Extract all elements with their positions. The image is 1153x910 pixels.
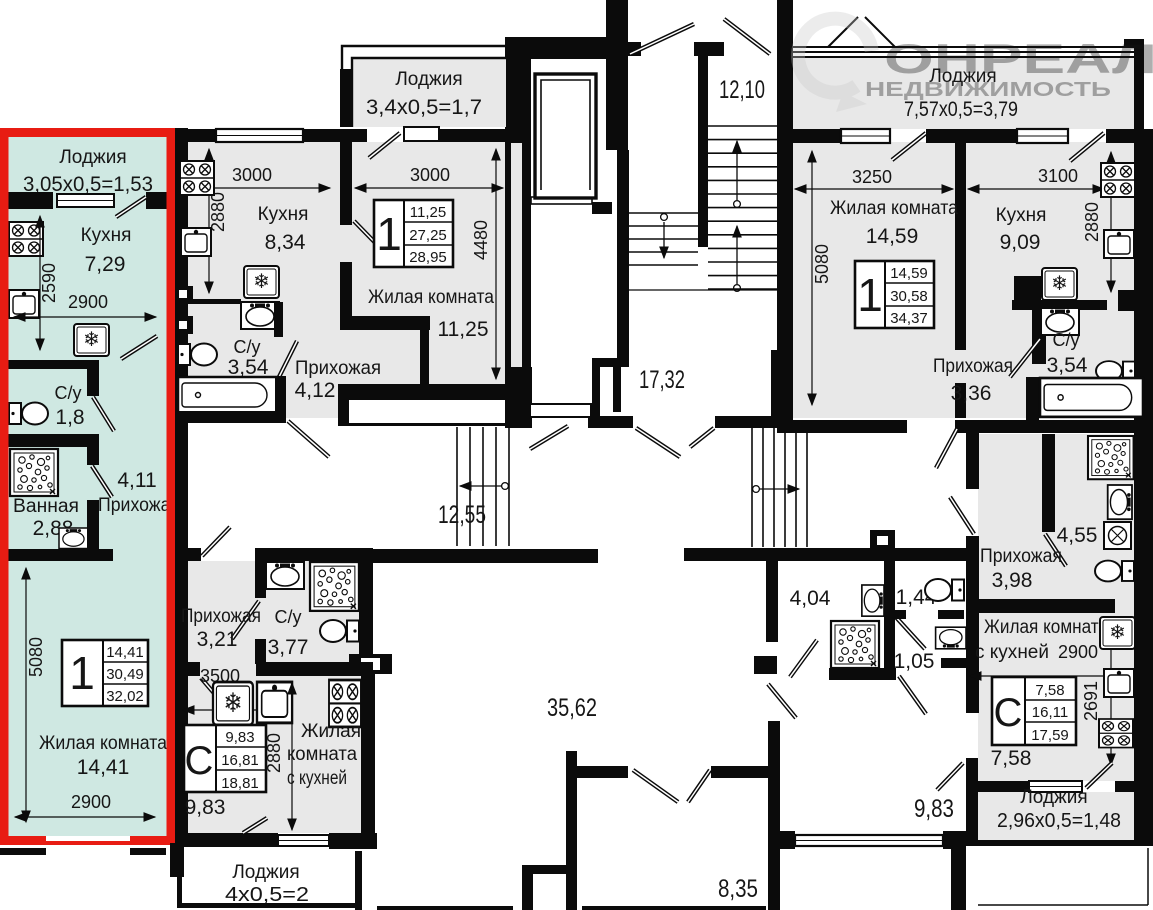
svg-text:С/у: С/у [55,383,82,403]
svg-text:Кухня: Кухня [258,204,309,225]
svg-text:30,49: 30,49 [106,666,144,683]
svg-text:18,81: 18,81 [221,775,259,792]
svg-text:Прихожая: Прихожая [933,356,1013,377]
svg-text:35,62: 35,62 [547,694,597,722]
svg-text:4,55: 4,55 [1057,524,1098,547]
svg-text:1: 1 [69,647,95,699]
svg-text:2900: 2900 [71,792,111,812]
svg-text:7,57х0,5=3,79: 7,57х0,5=3,79 [904,98,1018,121]
svg-text:9,09: 9,09 [1000,231,1041,254]
svg-text:16,81: 16,81 [221,752,259,769]
svg-text:32,02: 32,02 [106,688,144,705]
svg-text:12,10: 12,10 [719,76,765,104]
svg-text:9,83: 9,83 [225,729,254,746]
svg-text:7,29: 7,29 [85,253,126,276]
svg-text:3,54: 3,54 [228,356,269,379]
svg-text:4,11: 4,11 [117,469,156,492]
svg-text:9,83: 9,83 [914,795,954,823]
svg-text:11,25: 11,25 [438,318,489,341]
svg-text:28,95: 28,95 [409,249,447,266]
svg-text:14,59: 14,59 [890,265,928,282]
svg-text:Жилая комната: Жилая комната [830,198,958,219]
svg-text:2880: 2880 [1082,202,1102,242]
svg-text:с кухней: с кухней [287,768,347,789]
svg-text:3,4х0,5=1,7: 3,4х0,5=1,7 [366,96,482,119]
svg-text:НЕДВИЖИМОСТЬ: НЕДВИЖИМОСТЬ [865,79,1111,101]
svg-text:4480: 4480 [471,220,491,260]
svg-text:1: 1 [857,269,883,321]
svg-text:2691: 2691 [1081,681,1101,721]
svg-text:8,34: 8,34 [265,231,306,254]
svg-text:17,32: 17,32 [639,366,685,394]
svg-text:2590: 2590 [39,263,59,303]
svg-text:8,35: 8,35 [718,875,758,903]
svg-text:С/у: С/у [275,607,302,627]
svg-text:14,59: 14,59 [866,225,919,248]
svg-text:7,58: 7,58 [1035,682,1064,699]
svg-text:27,25: 27,25 [409,227,447,244]
svg-text:11,25: 11,25 [410,204,446,221]
svg-text:Жилая: Жилая [301,721,361,742]
svg-text:14,41: 14,41 [77,756,130,779]
svg-text:3,36: 3,36 [951,382,992,405]
svg-text:Прихожая: Прихожая [181,606,261,627]
svg-text:2880: 2880 [208,192,228,232]
svg-text:С/у: С/у [234,337,261,357]
svg-text:3,77: 3,77 [268,636,309,659]
svg-text:4,12: 4,12 [295,379,336,402]
svg-text:3100: 3100 [1038,166,1078,186]
svg-text:3,54: 3,54 [1047,354,1088,377]
svg-text:Кухня: Кухня [996,205,1047,226]
svg-text:12,55: 12,55 [438,501,486,529]
svg-text:9,83: 9,83 [185,796,226,819]
svg-text:Лоджия: Лоджия [1020,787,1087,808]
svg-text:Жилая комната: Жилая комната [368,287,494,308]
svg-text:4х0,5=2: 4х0,5=2 [225,884,309,906]
svg-text:Прихожая: Прихожая [295,358,381,379]
svg-text:3,21: 3,21 [197,628,238,651]
svg-text:16,11: 16,11 [1032,704,1068,721]
svg-text:3000: 3000 [232,165,272,185]
svg-text:2900: 2900 [68,292,108,312]
svg-text:34,37: 34,37 [890,310,928,327]
svg-text:5080: 5080 [812,244,832,284]
svg-text:Ванная: Ванная [13,496,79,517]
svg-text:14,41: 14,41 [106,644,144,661]
svg-text:1: 1 [376,208,402,260]
svg-text:Прихожая: Прихожая [980,546,1062,567]
svg-text:7,58: 7,58 [991,747,1032,770]
svg-text:С: С [994,691,1023,735]
svg-text:2,96х0,5=1,48: 2,96х0,5=1,48 [997,810,1121,832]
svg-text:Лоджия: Лоджия [59,147,126,168]
svg-text:с кухней: с кухней [975,642,1049,663]
svg-text:1,05: 1,05 [894,650,935,673]
svg-text:4,04: 4,04 [790,587,831,610]
svg-text:Жилая комната: Жилая комната [39,733,167,754]
svg-text:3000: 3000 [410,165,450,185]
svg-text:17,59: 17,59 [1031,727,1069,744]
svg-text:5080: 5080 [26,637,46,677]
svg-text:3,98: 3,98 [992,569,1033,592]
svg-text:С/у: С/у [1053,330,1080,350]
svg-text:С: С [185,739,214,783]
svg-text:комната: комната [287,744,357,765]
svg-text:Лоджия: Лоджия [232,862,299,883]
svg-text:Лоджия: Лоджия [395,69,462,90]
svg-text:1,8: 1,8 [55,406,84,429]
svg-text:ОНРЕАЛТ: ОНРЕАЛТ [884,35,1153,82]
svg-text:Кухня: Кухня [81,225,132,246]
svg-text:30,58: 30,58 [890,288,928,305]
svg-text:Жилая комната: Жилая комната [984,617,1108,638]
svg-text:2900: 2900 [1058,642,1098,662]
svg-text:3250: 3250 [852,167,892,187]
